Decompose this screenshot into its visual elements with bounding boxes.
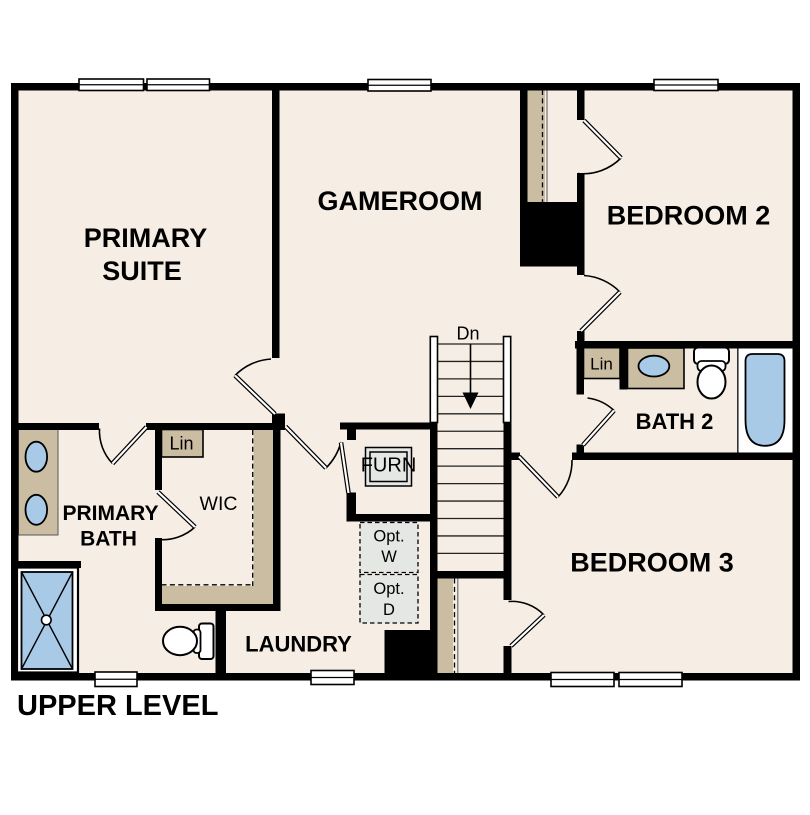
- svg-text:LAUNDRY: LAUNDRY: [245, 632, 352, 657]
- svg-text:Dn: Dn: [456, 324, 479, 344]
- svg-text:WIC: WIC: [200, 493, 238, 515]
- svg-text:BATH: BATH: [80, 528, 137, 551]
- svg-text:PRIMARY: PRIMARY: [84, 223, 208, 253]
- svg-text:FURN: FURN: [361, 455, 417, 477]
- svg-text:Lin: Lin: [590, 355, 613, 374]
- svg-text:UPPER LEVEL: UPPER LEVEL: [17, 690, 218, 722]
- svg-text:Lin: Lin: [169, 434, 193, 454]
- svg-text:PRIMARY: PRIMARY: [62, 502, 158, 525]
- svg-text:Opt.: Opt.: [373, 580, 404, 598]
- svg-text:GAMEROOM: GAMEROOM: [318, 186, 483, 216]
- svg-text:BEDROOM 2: BEDROOM 2: [607, 201, 771, 231]
- svg-text:BATH 2: BATH 2: [636, 409, 714, 434]
- svg-text:W: W: [381, 548, 397, 566]
- svg-text:BEDROOM 3: BEDROOM 3: [570, 548, 734, 578]
- svg-text:D: D: [383, 601, 395, 619]
- svg-text:SUITE: SUITE: [102, 256, 182, 286]
- svg-text:Opt.: Opt.: [373, 528, 404, 546]
